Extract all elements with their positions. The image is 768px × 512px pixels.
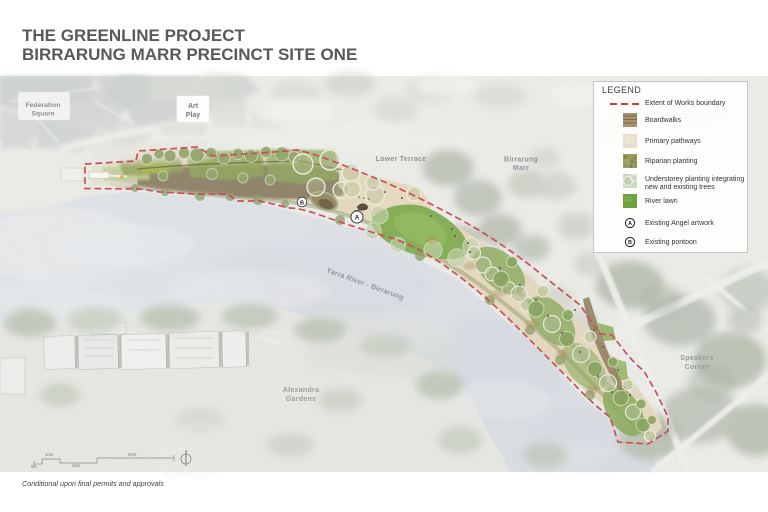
svg-text:Marr: Marr (513, 165, 529, 172)
svg-text:Gardens: Gardens (286, 396, 317, 403)
svg-text:5m: 5m (31, 464, 37, 469)
svg-text:Corner: Corner (685, 364, 710, 371)
svg-text:Federation: Federation (26, 102, 61, 109)
svg-text:Speakers: Speakers (680, 355, 714, 362)
svg-text:Art: Art (188, 103, 199, 110)
svg-text:Alexandra: Alexandra (283, 387, 320, 394)
svg-text:B: B (628, 240, 632, 246)
svg-text:A: A (628, 221, 632, 227)
svg-text:Lower Terrace: Lower Terrace (376, 156, 427, 163)
svg-text:50m: 50m (128, 452, 137, 457)
svg-text:Birrarung: Birrarung (504, 157, 538, 164)
svg-text:Square: Square (31, 111, 54, 118)
svg-text:B: B (300, 200, 304, 206)
svg-text:Play: Play (186, 112, 201, 119)
svg-text:A: A (355, 215, 360, 222)
svg-text:25m: 25m (72, 463, 81, 468)
svg-text:10m: 10m (45, 452, 54, 457)
